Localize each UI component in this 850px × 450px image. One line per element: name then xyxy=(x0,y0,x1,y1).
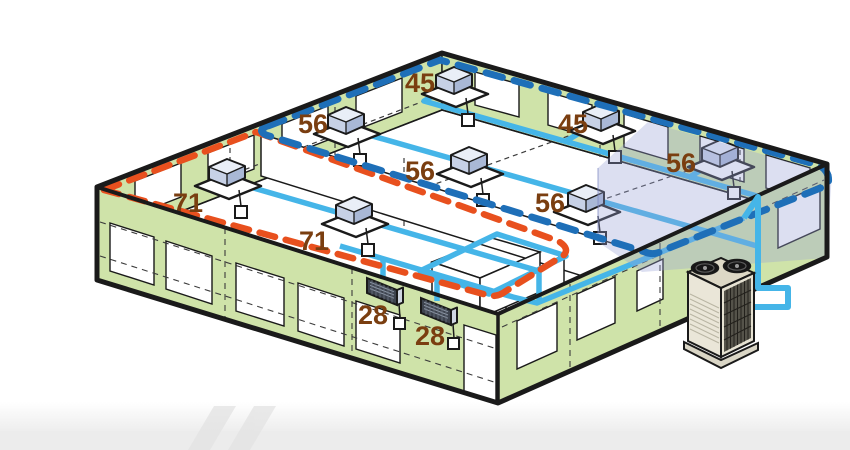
diagram-canvas: 45 45 56 56 56 56 71 71 28 28 xyxy=(0,0,850,450)
unit-capacity-label: 56 xyxy=(535,188,565,218)
outdoor-unit xyxy=(684,258,758,368)
door xyxy=(464,325,496,402)
unit-capacity-label: 56 xyxy=(298,109,328,139)
unit-capacity-label: 45 xyxy=(558,109,588,139)
unit-capacity-label: 28 xyxy=(358,300,388,330)
footer-band xyxy=(0,402,850,450)
unit-capacity-label: 28 xyxy=(415,321,445,351)
unit-capacity-label: 56 xyxy=(405,156,435,186)
unit-capacity-label: 45 xyxy=(405,68,435,98)
hvac-zoning-diagram: 45 45 56 56 56 56 71 71 28 28 xyxy=(0,0,850,450)
unit-capacity-label: 56 xyxy=(666,148,696,178)
